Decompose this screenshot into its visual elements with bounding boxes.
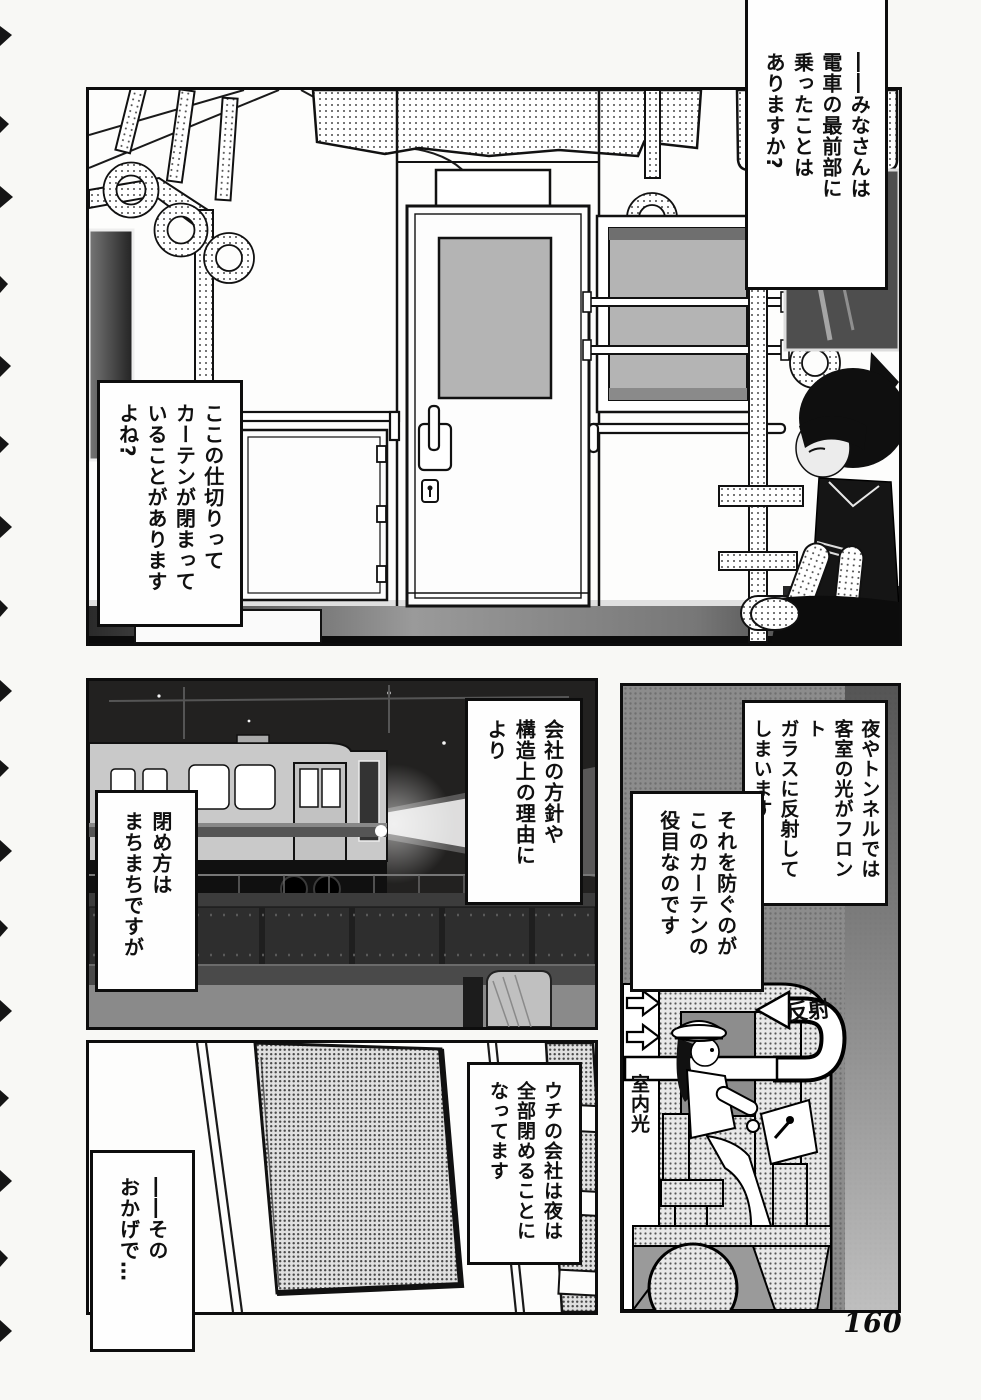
speech-text: ここの仕切りって カーテンが閉まって いることがあります よね? bbox=[113, 403, 227, 592]
door-handle bbox=[429, 406, 439, 450]
speech-bubble-q1: ――みなさんは 電車の最前部に 乗ったことは ありますか? bbox=[745, 0, 888, 290]
speech-text: ウチの会社は夜は 全部閉めることに なってます bbox=[484, 1081, 565, 1241]
headlight-icon bbox=[375, 825, 387, 837]
manga-page: ――みなさんは 電車の最前部に 乗ったことは ありますか? ここの仕切りって カ… bbox=[0, 0, 981, 1400]
train-nose-section bbox=[633, 1226, 831, 1310]
door-window bbox=[439, 238, 551, 398]
speech-bubble-company-rule: ウチの会社は夜は 全部閉めることに なってます bbox=[467, 1062, 582, 1265]
speech-text: 夜やトンネルでは 客室の光がフロント ガラスに反射して しまいます bbox=[748, 719, 883, 895]
door-sign bbox=[436, 170, 550, 208]
ceiling-curtain bbox=[313, 90, 701, 156]
speech-text: ――その おかげで… bbox=[114, 1177, 171, 1282]
diagram-label-reflection: 反射 bbox=[784, 988, 857, 1029]
diagram-label-room-light: 室内光 bbox=[625, 1074, 652, 1204]
page-number: 160 bbox=[838, 1308, 908, 1339]
speech-text: ――みなさんは 電車の最前部に 乗ったことは ありますか? bbox=[760, 52, 874, 199]
speech-bubble-thanks-to: ――その おかげで… bbox=[90, 1150, 195, 1352]
speech-bubble-curtain-role: それを防ぐのが このカーテンの 役目なのです bbox=[630, 791, 764, 992]
page-edge-marks bbox=[0, 0, 18, 1400]
speech-bubble-q2: ここの仕切りって カーテンが閉まって いることがあります よね? bbox=[97, 380, 243, 627]
speech-text: 閉め方は まちまちですが bbox=[118, 811, 175, 958]
speech-bubble-varies: 閉め方は まちまちですが bbox=[95, 790, 198, 992]
curtain bbox=[255, 1043, 461, 1293]
bridge-pillar bbox=[463, 971, 551, 1027]
speech-text: それを防ぐのが このカーテンの 役目なのです bbox=[654, 810, 739, 957]
speech-text: 会社の方針や 構造上の理由に より bbox=[481, 719, 566, 866]
speech-bubble-policy: 会社の方針や 構造上の理由に より bbox=[465, 698, 583, 905]
